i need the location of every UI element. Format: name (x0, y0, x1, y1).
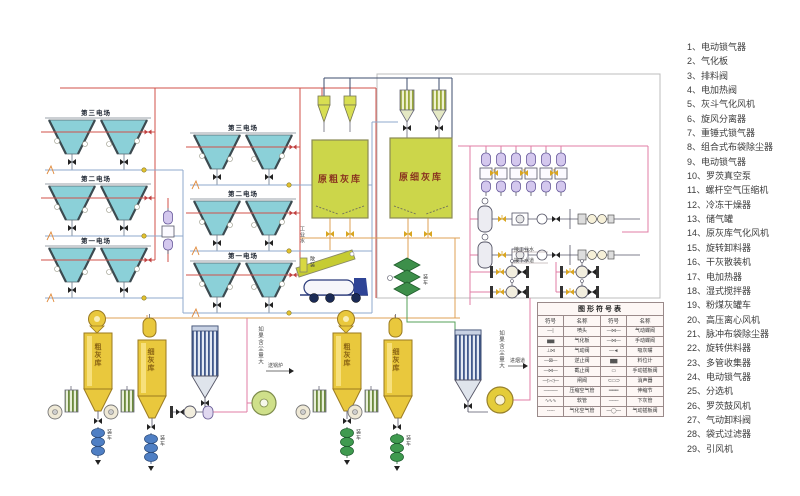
fine-silo-left-label: 细灰库 (145, 348, 155, 372)
wet-mixer (388, 258, 421, 296)
symbol-glyph-right: —⋈— (601, 337, 627, 347)
bulk-load-label: 散装 (309, 256, 316, 268)
symbol-glyph-left: —▷◁— (538, 377, 564, 387)
legend-item: 13、储气罐 (687, 212, 773, 226)
symbol-name-left: 逆止阀 (564, 357, 601, 367)
fine-ash-silo-left-group (104, 314, 166, 471)
connect-sewer-label: 接下水道 (514, 257, 534, 264)
raw-fine-ash-silo (390, 138, 452, 237)
esp-field-label-c2r3: 第一电场 (213, 250, 273, 260)
symbol-glyph-right: —◯— (601, 407, 627, 417)
induced-draft-fan (487, 363, 528, 413)
symbol-glyph-right: ▭ (601, 367, 627, 377)
symbol-name-right: 料位计 (627, 357, 664, 367)
compressor-train-2 (478, 234, 640, 268)
symbol-name-right: 消声器 (627, 377, 664, 387)
legend-item: 20、高压离心风机 (687, 313, 773, 327)
legend-item: 26、罗茨鼓风机 (687, 399, 773, 413)
high-dust-note-left: 如果含尘量大 (256, 326, 264, 365)
legend-item: 8、组合式布袋除尘器 (687, 140, 773, 154)
legend-item: 1、电动锁气器 (687, 40, 773, 54)
symbol-table-header-symbol-1: 符号 (538, 316, 564, 327)
symbol-glyph-left: —⋈— (538, 367, 564, 377)
legend-item: 4、电加热阀 (687, 83, 773, 97)
legend-item: 3、排料阀 (687, 69, 773, 83)
symbol-glyph-right: ▆▆ (601, 357, 627, 367)
legend-item: 24、电动锁气器 (687, 370, 773, 384)
legend-item: 6、旋风分离器 (687, 112, 773, 126)
symbol-table-row: ⊥⋈ 气动阀 —◄ 吸灰嘴 (538, 347, 664, 357)
high-dust-note-right: 如果含尘量大 (497, 330, 505, 369)
raw-coarse-silo-label: 原粗灰库 (312, 172, 368, 185)
esp-field-label-c1r2: 第二电场 (66, 173, 126, 183)
roots-blower-units (490, 260, 599, 299)
legend-item: 7、重锤式锁气器 (687, 126, 773, 140)
fine-silo-mid-label: 细灰库 (390, 348, 400, 372)
symbol-name-left: 压缩空气管 (564, 387, 601, 397)
legend-item: 2、气化板 (687, 54, 773, 68)
coarse-silo-mid-label: 粗灰库 (341, 343, 351, 367)
raw-fine-silo-label: 原细灰库 (390, 170, 452, 183)
esp-hopper-grid (41, 118, 300, 317)
symbol-glyph-left: —⊠— (538, 357, 564, 367)
symbol-name-right: 气动蝶阀 (627, 327, 664, 337)
legend-item: 14、原灰库气化风机 (687, 226, 773, 240)
symbol-table-row: —∣ 喷头 —⋈— 气动蝶阀 (538, 327, 664, 337)
symbol-table-row: —▷◁— 闸阀 ⊂▭⊃ 消声器 (538, 377, 664, 387)
legend-item: 16、干灰散装机 (687, 255, 773, 269)
coarse-silo-left-label: 粗灰库 (92, 343, 102, 367)
dry-ash-bulk-loader (296, 250, 355, 277)
equipment-legend: 1、电动锁气器 2、气化板 3、排料阀 4、电加热阀 5、灰斗气化风机 6、旋风… (687, 40, 773, 456)
legend-item: 29、引风机 (687, 442, 773, 456)
compressor-train-1 (478, 198, 640, 232)
symbol-glyph-right: ─── (601, 397, 627, 407)
load-truck-label-1: 装车 (106, 429, 113, 441)
symbol-name-left: 喷头 (564, 327, 601, 337)
legend-item: 19、粉煤灰罐车 (687, 298, 773, 312)
vacuum-bag-filter-left (170, 326, 218, 419)
symbol-table-header-name-1: 名称 (564, 316, 601, 327)
symbol-table-row: ∿∿∿ 软管 ─── 下灰管 (538, 397, 664, 407)
symbol-table-row: ——— 压缩空气管 ═══ 伸缩节 (538, 387, 664, 397)
legend-item: 11、螺杆空气压缩机 (687, 183, 773, 197)
symbol-table-header-name-2: 名称 (627, 316, 664, 327)
symbol-name-right: 手动蝶阀 (627, 337, 664, 347)
symbol-glyph-right: —◄ (601, 347, 627, 357)
esp-field-label-c2r2: 第二电场 (213, 188, 273, 198)
bag-filter-units (400, 90, 446, 138)
symbol-glyph-right: ⊂▭⊃ (601, 377, 627, 387)
symbol-glyph-left: —∣ (538, 327, 564, 337)
symbol-glyph-left: ∿∿∿ (538, 397, 564, 407)
load-truck-label-5: 装车 (422, 274, 429, 286)
esp-field-label-c1r3: 第一电场 (66, 235, 126, 245)
symbol-name-left: 软管 (564, 397, 601, 407)
symbol-table-row: ╌╌╌ 气化空气管 —◯— 气动插板阀 (538, 407, 664, 417)
fly-ash-tank-truck (300, 278, 368, 303)
raw-coarse-ash-silo (312, 140, 368, 237)
air-lock-manifold (480, 150, 567, 196)
symbol-name-left: 气动阀 (564, 347, 601, 357)
symbol-name-left: 气化板 (564, 337, 601, 347)
esp-field-label-c1r1: 第三电场 (66, 107, 126, 117)
esp-field-label-c2r1: 第三电场 (213, 122, 273, 132)
to-boiler-label: 送锅炉 (268, 362, 283, 369)
symbol-table-title: 图形符号表 (538, 303, 664, 316)
symbol-table-row: —⋈— 截止阀 ▭ 手动插板阀 (538, 367, 664, 377)
symbol-name-left: 截止阀 (564, 367, 601, 377)
legend-item: 5、灰斗气化风机 (687, 97, 773, 111)
legend-item: 25、分选机 (687, 384, 773, 398)
symbol-glyph-right: ═══ (601, 387, 627, 397)
symbol-table: 图形符号表 符号 名称 符号 名称 —∣ 喷头 —⋈— 气动蝶阀 ▅▅ 气化板 … (537, 302, 664, 417)
green-mixer-piping (407, 294, 455, 330)
symbol-glyph-left: ——— (538, 387, 564, 397)
symbol-name-right: 下灰管 (627, 397, 664, 407)
legend-item: 17、电加热器 (687, 270, 773, 284)
load-truck-label-4: 装车 (405, 435, 412, 447)
symbol-name-left: 闸阀 (564, 377, 601, 387)
legend-item: 21、脉冲布袋除尘器 (687, 327, 773, 341)
diagram-stage: 第三电场 第二电场 第一电场 第三电场 第二电场 第一电场 原粗灰库 原细灰库 … (0, 0, 800, 496)
coarse-ash-silo-mid-group (296, 311, 361, 466)
to-flue-label: 进烟道 (510, 357, 525, 364)
legend-item: 15、旋转卸料器 (687, 241, 773, 255)
symbol-glyph-right: —⋈— (601, 327, 627, 337)
legend-item: 23、多管收集器 (687, 356, 773, 370)
symbol-table-row: ▅▅ 气化板 —⋈— 手动蝶阀 (538, 337, 664, 347)
symbol-name-right: 气动插板阀 (627, 407, 664, 417)
cyclone-separators (318, 96, 356, 132)
load-truck-label-2: 装车 (159, 435, 166, 447)
symbol-glyph-left: ▅▅ (538, 337, 564, 347)
symbol-name-right: 吸灰嘴 (627, 347, 664, 357)
symbol-name-right: 手动插板阀 (627, 367, 664, 377)
legend-item: 12、冷冻干燥器 (687, 198, 773, 212)
coarse-ash-silo-left-group (48, 311, 112, 466)
connect-industrial-water-label: 接工业水 (514, 246, 534, 253)
symbol-table-row: —⊠— 逆止阀 ▆▆ 料位计 (538, 357, 664, 367)
legend-item: 18、湿式搅拌器 (687, 284, 773, 298)
symbol-name-left: 气化空气管 (564, 407, 601, 417)
legend-item: 28、袋式过滤器 (687, 427, 773, 441)
symbol-glyph-left: ⊥⋈ (538, 347, 564, 357)
legend-item: 22、旋转供料器 (687, 341, 773, 355)
legend-item: 27、气动卸料阀 (687, 413, 773, 427)
high-pressure-centrifugal-fan (252, 368, 294, 415)
multi-tube-collector (455, 330, 488, 412)
legend-item: 10、罗茨真空泵 (687, 169, 773, 183)
symbol-glyph-left: ╌╌╌ (538, 407, 564, 417)
load-truck-label-3: 装车 (355, 429, 362, 441)
symbol-name-right: 伸缩节 (627, 387, 664, 397)
symbol-table-header-symbol-2: 符号 (601, 316, 627, 327)
industrial-water-label: 工业水 (299, 226, 306, 244)
flow-diagram (0, 0, 800, 496)
legend-item: 9、电动锁气器 (687, 155, 773, 169)
